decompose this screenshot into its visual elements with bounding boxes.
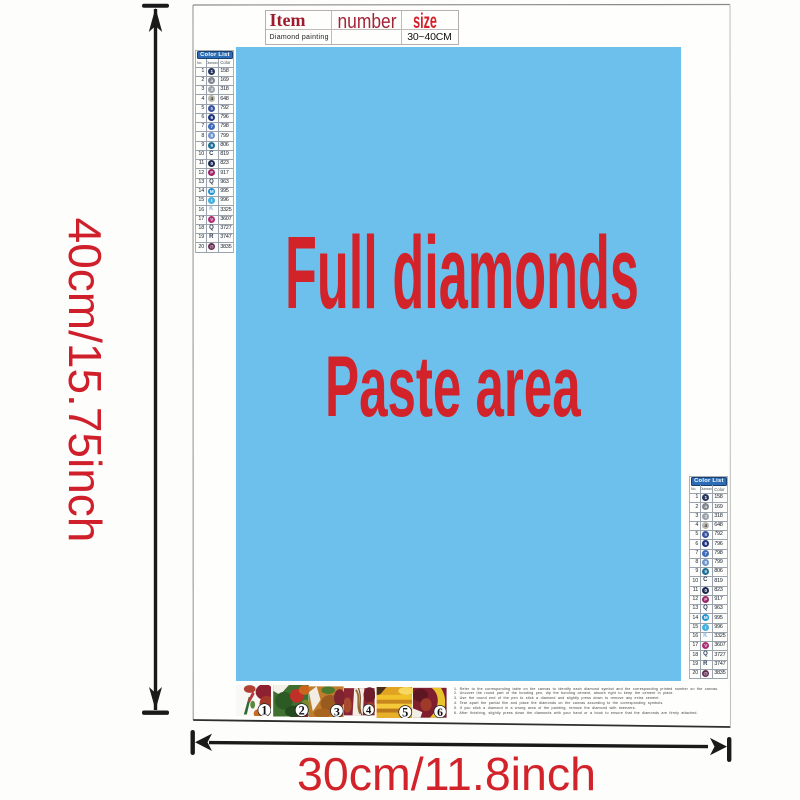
svg-text:4: 4 [366,706,372,717]
svg-text:2: 2 [299,704,305,717]
svg-text:6: 6 [437,706,443,719]
svg-text:1: 1 [261,703,267,716]
svg-text:3: 3 [334,704,340,717]
svg-text:5: 5 [402,705,408,718]
